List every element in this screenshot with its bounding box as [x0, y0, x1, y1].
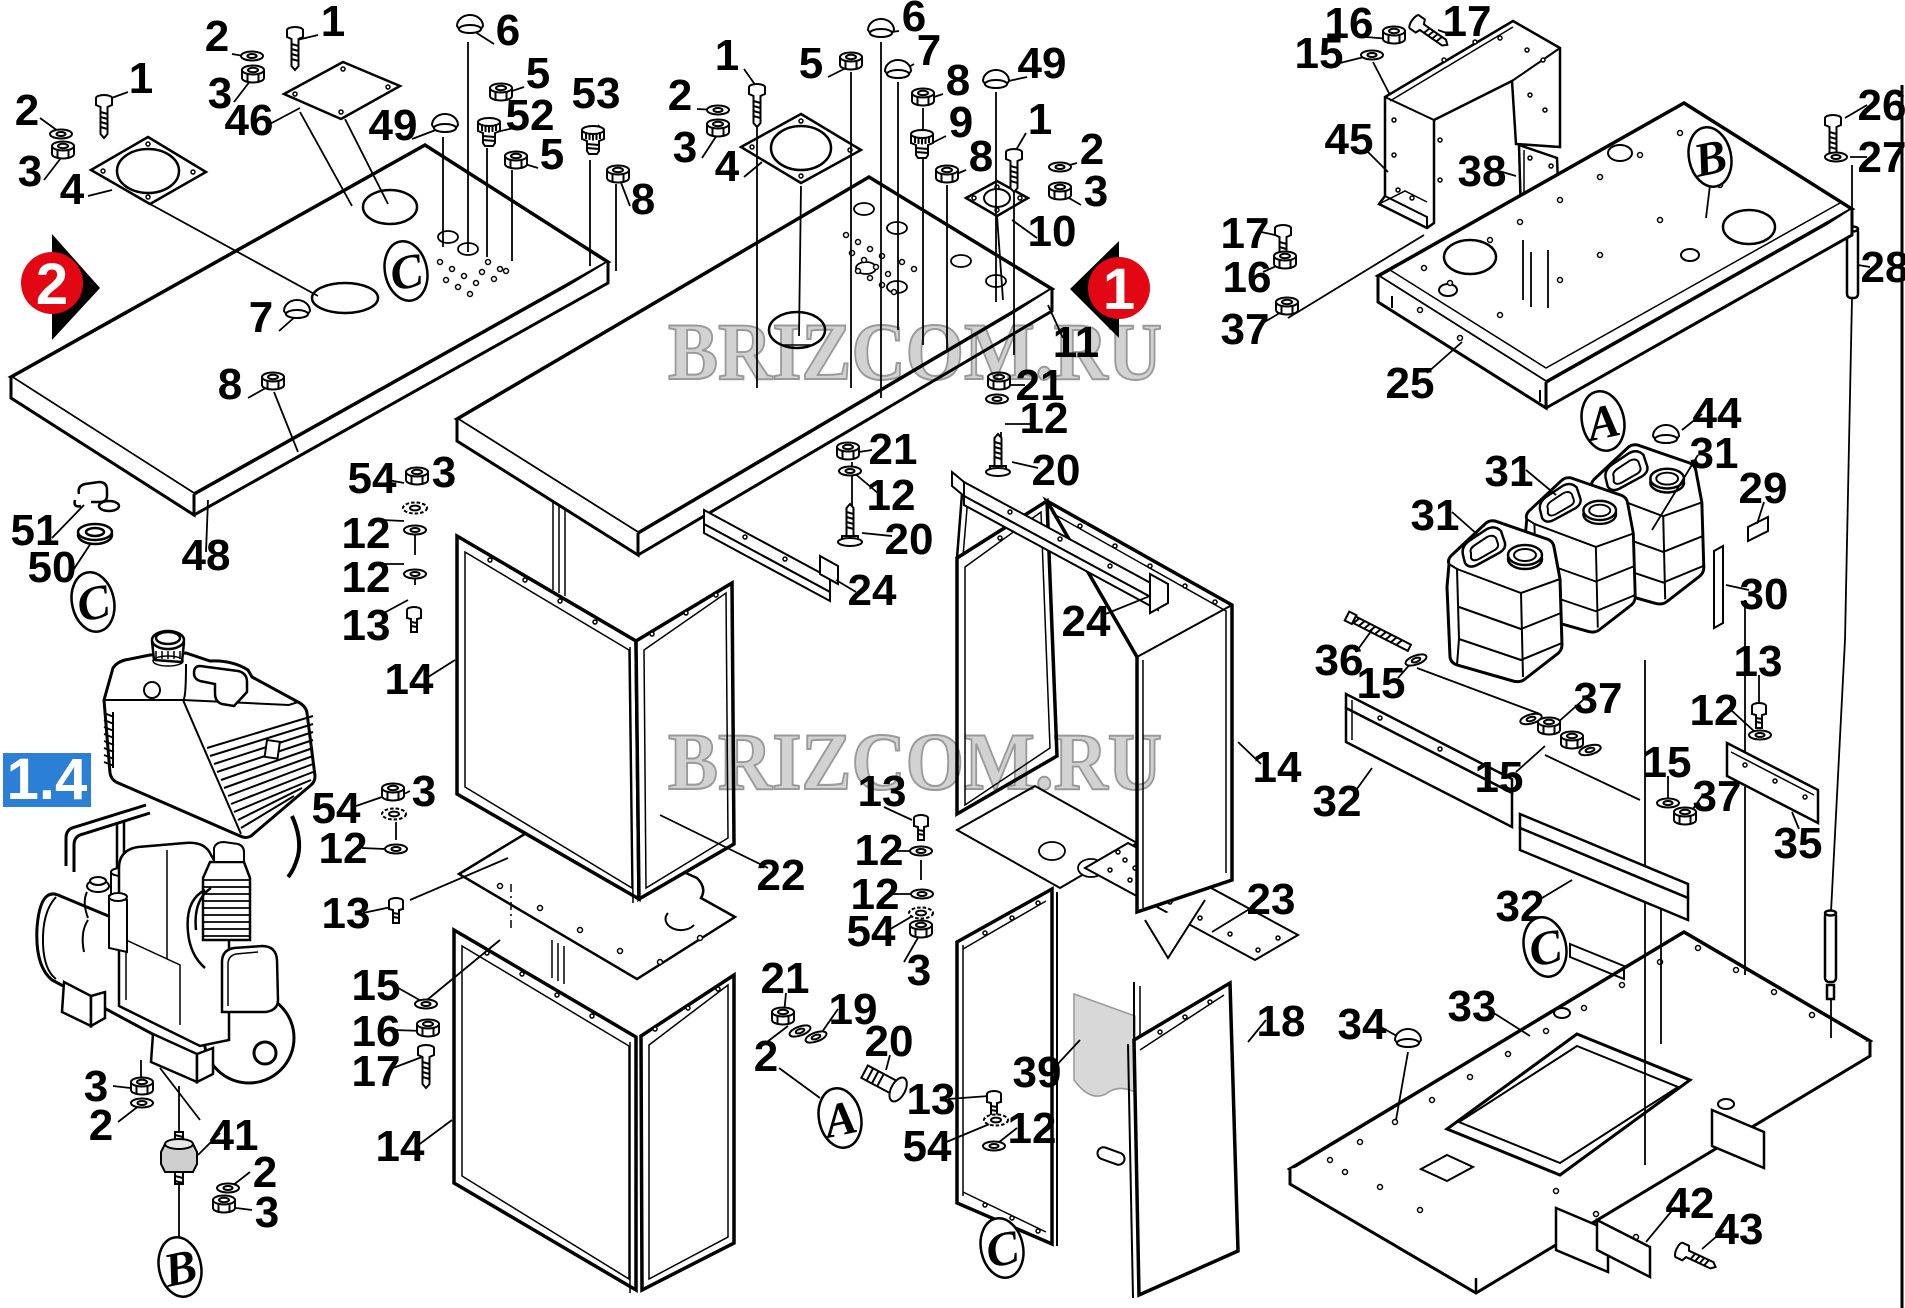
svg-text:31: 31	[1411, 491, 1460, 540]
svg-text:8: 8	[218, 360, 242, 409]
svg-text:21: 21	[869, 425, 918, 474]
svg-text:17: 17	[352, 1047, 401, 1096]
svg-text:13: 13	[1734, 637, 1783, 686]
svg-text:24: 24	[1062, 597, 1111, 646]
svg-text:1: 1	[1028, 95, 1052, 144]
svg-text:3: 3	[907, 946, 931, 995]
svg-text:15: 15	[1475, 753, 1524, 802]
svg-text:22: 22	[757, 851, 806, 900]
svg-text:28: 28	[1861, 243, 1905, 292]
svg-text:BRIZCOM.RU: BRIZCOM.RU	[668, 716, 1162, 807]
svg-text:4: 4	[715, 142, 740, 191]
svg-text:12: 12	[319, 824, 368, 873]
svg-text:2: 2	[668, 71, 692, 120]
svg-text:38: 38	[1458, 147, 1507, 196]
svg-text:2: 2	[15, 86, 39, 135]
svg-text:1: 1	[1103, 257, 1135, 322]
svg-text:17: 17	[1443, 0, 1492, 46]
svg-text:20: 20	[885, 515, 934, 564]
svg-text:37: 37	[1221, 305, 1270, 354]
svg-text:18: 18	[1257, 997, 1306, 1046]
svg-text:13: 13	[342, 601, 391, 650]
svg-text:20: 20	[1032, 446, 1081, 495]
svg-text:3: 3	[432, 448, 456, 497]
svg-text:12: 12	[1690, 686, 1739, 735]
svg-text:54: 54	[903, 1122, 952, 1171]
svg-text:54: 54	[348, 454, 397, 503]
svg-text:6: 6	[496, 6, 520, 55]
svg-text:29: 29	[1739, 464, 1788, 513]
svg-text:49: 49	[1018, 39, 1067, 88]
svg-text:37: 37	[1693, 772, 1742, 821]
svg-text:2: 2	[754, 1032, 778, 1081]
svg-text:10: 10	[1028, 207, 1077, 256]
svg-text:13: 13	[322, 889, 371, 938]
svg-text:14: 14	[376, 1122, 425, 1171]
svg-text:17: 17	[1221, 209, 1270, 258]
svg-text:1: 1	[321, 0, 345, 46]
svg-text:26: 26	[1858, 81, 1905, 130]
svg-text:30: 30	[1740, 570, 1789, 619]
svg-text:25: 25	[1386, 359, 1435, 408]
svg-text:BRIZCOM.RU: BRIZCOM.RU	[668, 306, 1162, 397]
svg-text:3: 3	[412, 767, 436, 816]
svg-text:34: 34	[1338, 1000, 1387, 1049]
svg-text:5: 5	[540, 130, 564, 179]
svg-text:2: 2	[36, 252, 68, 317]
svg-text:32: 32	[1313, 777, 1362, 826]
svg-text:20: 20	[865, 1017, 914, 1066]
svg-text:15: 15	[352, 961, 401, 1010]
svg-text:21: 21	[761, 954, 810, 1003]
svg-text:4: 4	[60, 165, 85, 214]
svg-text:23: 23	[1247, 875, 1296, 924]
svg-text:1.4: 1.4	[7, 747, 88, 812]
svg-text:31: 31	[1690, 429, 1739, 478]
svg-text:43: 43	[1715, 1205, 1764, 1254]
svg-text:37: 37	[1574, 674, 1623, 723]
svg-text:1: 1	[715, 31, 739, 80]
svg-text:31: 31	[1485, 447, 1534, 496]
svg-text:48: 48	[182, 531, 231, 580]
svg-text:3: 3	[255, 1188, 279, 1237]
svg-text:12: 12	[342, 509, 391, 558]
svg-text:7: 7	[249, 293, 273, 342]
svg-text:35: 35	[1774, 819, 1823, 868]
svg-text:15: 15	[1357, 659, 1406, 708]
svg-text:50: 50	[28, 543, 77, 592]
svg-text:13: 13	[907, 1075, 956, 1124]
svg-text:8: 8	[969, 132, 993, 181]
svg-text:49: 49	[369, 101, 418, 150]
svg-text:12: 12	[342, 553, 391, 602]
svg-text:3: 3	[18, 147, 42, 196]
svg-text:42: 42	[1666, 1179, 1715, 1228]
svg-text:14: 14	[385, 655, 434, 704]
svg-text:3: 3	[1084, 167, 1108, 216]
svg-text:7: 7	[917, 26, 941, 75]
svg-text:45: 45	[1325, 115, 1374, 164]
svg-text:27: 27	[1858, 133, 1905, 182]
svg-text:16: 16	[1223, 253, 1272, 302]
svg-text:53: 53	[572, 69, 621, 118]
svg-text:3: 3	[673, 123, 697, 172]
svg-text:15: 15	[1643, 738, 1692, 787]
svg-text:2: 2	[205, 12, 229, 61]
svg-text:33: 33	[1448, 982, 1497, 1031]
svg-text:41: 41	[210, 1111, 259, 1160]
svg-text:2: 2	[89, 1101, 113, 1150]
svg-text:12: 12	[867, 471, 916, 520]
svg-text:1: 1	[129, 54, 153, 103]
svg-text:54: 54	[847, 907, 896, 956]
svg-text:46: 46	[225, 96, 274, 145]
svg-text:24: 24	[848, 566, 897, 615]
svg-text:39: 39	[1013, 1048, 1062, 1097]
svg-text:12: 12	[1008, 1104, 1057, 1153]
svg-text:12: 12	[1020, 394, 1069, 443]
svg-text:5: 5	[799, 39, 823, 88]
svg-text:12: 12	[855, 826, 904, 875]
svg-text:8: 8	[631, 175, 655, 224]
svg-text:15: 15	[1295, 29, 1344, 78]
svg-text:14: 14	[1253, 743, 1302, 792]
